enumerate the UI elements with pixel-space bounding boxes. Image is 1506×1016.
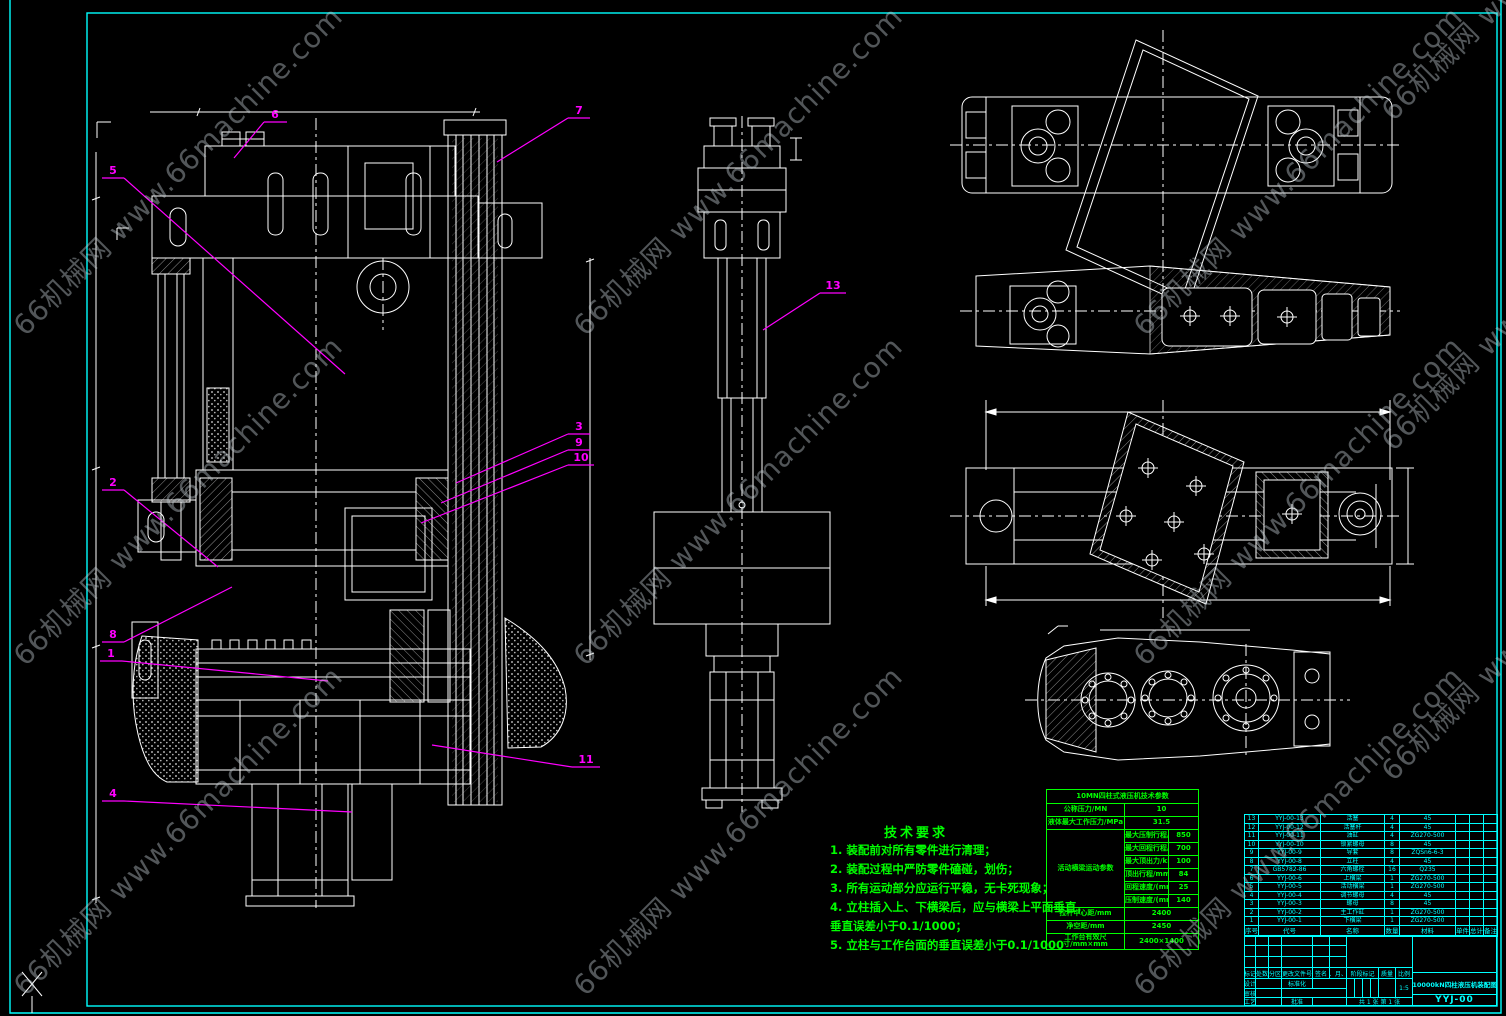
callout-label: 10 — [573, 451, 589, 464]
bom-row: 6YYJ-00-6 上横梁1 ZG270-500 — [1245, 874, 1498, 883]
cad-sheet: 6 7 5 2 8 1 4 3 9 10 11 13 66机械网 www.66m… — [0, 0, 1506, 1016]
callout-label: 5 — [109, 164, 117, 177]
callout-label: 4 — [109, 787, 117, 800]
title-block: 标记 处数 分区 更改文件号 签名 年、月、日 设计 标准化 审核 工艺 批准 … — [1244, 935, 1497, 1006]
spec-table: 10MN四柱式液压机技术参数 公称压力/MN10 液体最大工作压力/MPa31.… — [1046, 789, 1199, 950]
bom-row: 1YYJ-00-1 下横梁1 ZG270-500 — [1245, 917, 1498, 926]
notes-line: 1. 装配前对所有零件进行清理； — [830, 841, 1065, 860]
spec-group-label: 活动横梁运动参数 — [1047, 830, 1125, 908]
notes-line: 3. 所有运动部分应运行平稳，无卡死现象； — [830, 879, 1065, 898]
fold-mark-icon — [22, 972, 42, 1013]
bom-row: 7GB5782-86 六角螺栓16 Q235 — [1245, 866, 1498, 875]
tb-company — [1412, 935, 1497, 973]
side-view — [654, 116, 830, 812]
bom-row: 9YYJ-00-9 导套8 ZQSn6-6-3 — [1245, 849, 1498, 858]
bom-table: 13YYJ-00-13 活塞4 45 12YYJ-00-12 活塞杆4 45 1… — [1244, 814, 1498, 937]
notes-line: 垂直误差小于0.1/1000； — [830, 917, 1065, 936]
tb-approve: 批准 — [1281, 997, 1313, 1006]
drawing-title: 10000kN四柱液压机装配图 — [1412, 972, 1497, 995]
tb-scale-value: 1:5 — [1395, 978, 1413, 998]
notes-title: 技术要求 — [884, 822, 1065, 841]
callout-label: 3 — [575, 420, 583, 433]
bom-row: 2YYJ-00-2 主工作缸1 ZG270-500 — [1245, 908, 1498, 917]
callout-label: 11 — [578, 753, 593, 766]
callout-label: 8 — [109, 628, 117, 641]
bom-row: 10YYJ-00-10 锁紧螺母8 45 — [1245, 840, 1498, 849]
beam-end-view — [1025, 626, 1350, 760]
beam-side-view — [960, 266, 1400, 354]
bom-row: 4YYJ-00-4 调节螺母4 45 — [1245, 891, 1498, 900]
callout-label: 7 — [575, 104, 583, 117]
bom-row: 8YYJ-00-8 立柱4 45 — [1245, 857, 1498, 866]
callout-label: 2 — [109, 476, 117, 489]
front-view — [92, 108, 594, 908]
notes-line: 5. 立柱与工作台面的垂直误差小于0.1/1000 — [830, 936, 1065, 955]
bom-row: 12YYJ-00-12 活塞杆4 45 — [1245, 823, 1498, 832]
callout-label: 1 — [107, 647, 115, 660]
callout-label: 9 — [575, 436, 583, 449]
beam-plan-view — [950, 400, 1414, 618]
callout-label: 6 — [271, 108, 279, 121]
technical-notes: 技术要求 1. 装配前对所有零件进行清理；2. 装配过程中严防零件磕碰，划伤；3… — [830, 822, 1065, 955]
callout-label: 13 — [825, 279, 840, 292]
bom-row: 3YYJ-00-3 螺母8 45 — [1245, 900, 1498, 909]
notes-line: 2. 装配过程中严防零件磕碰，划伤； — [830, 860, 1065, 879]
bom-row: 5YYJ-00-5 活动横梁1 ZG270-500 — [1245, 883, 1498, 892]
notes-line: 4. 立柱插入上、下横梁后，应与横梁上平面垂直， — [830, 898, 1065, 917]
bom-row: 11YYJ-00-11 油缸4 ZG270-500 — [1245, 832, 1498, 841]
bom-row: 13YYJ-00-13 活塞4 45 — [1245, 815, 1498, 824]
drawing-number: YYJ-00 — [1412, 994, 1497, 1006]
spec-title: 10MN四柱式液压机技术参数 — [1047, 790, 1199, 804]
tb-sheet-info: 共 1 张 第 1 张 — [1346, 997, 1413, 1006]
